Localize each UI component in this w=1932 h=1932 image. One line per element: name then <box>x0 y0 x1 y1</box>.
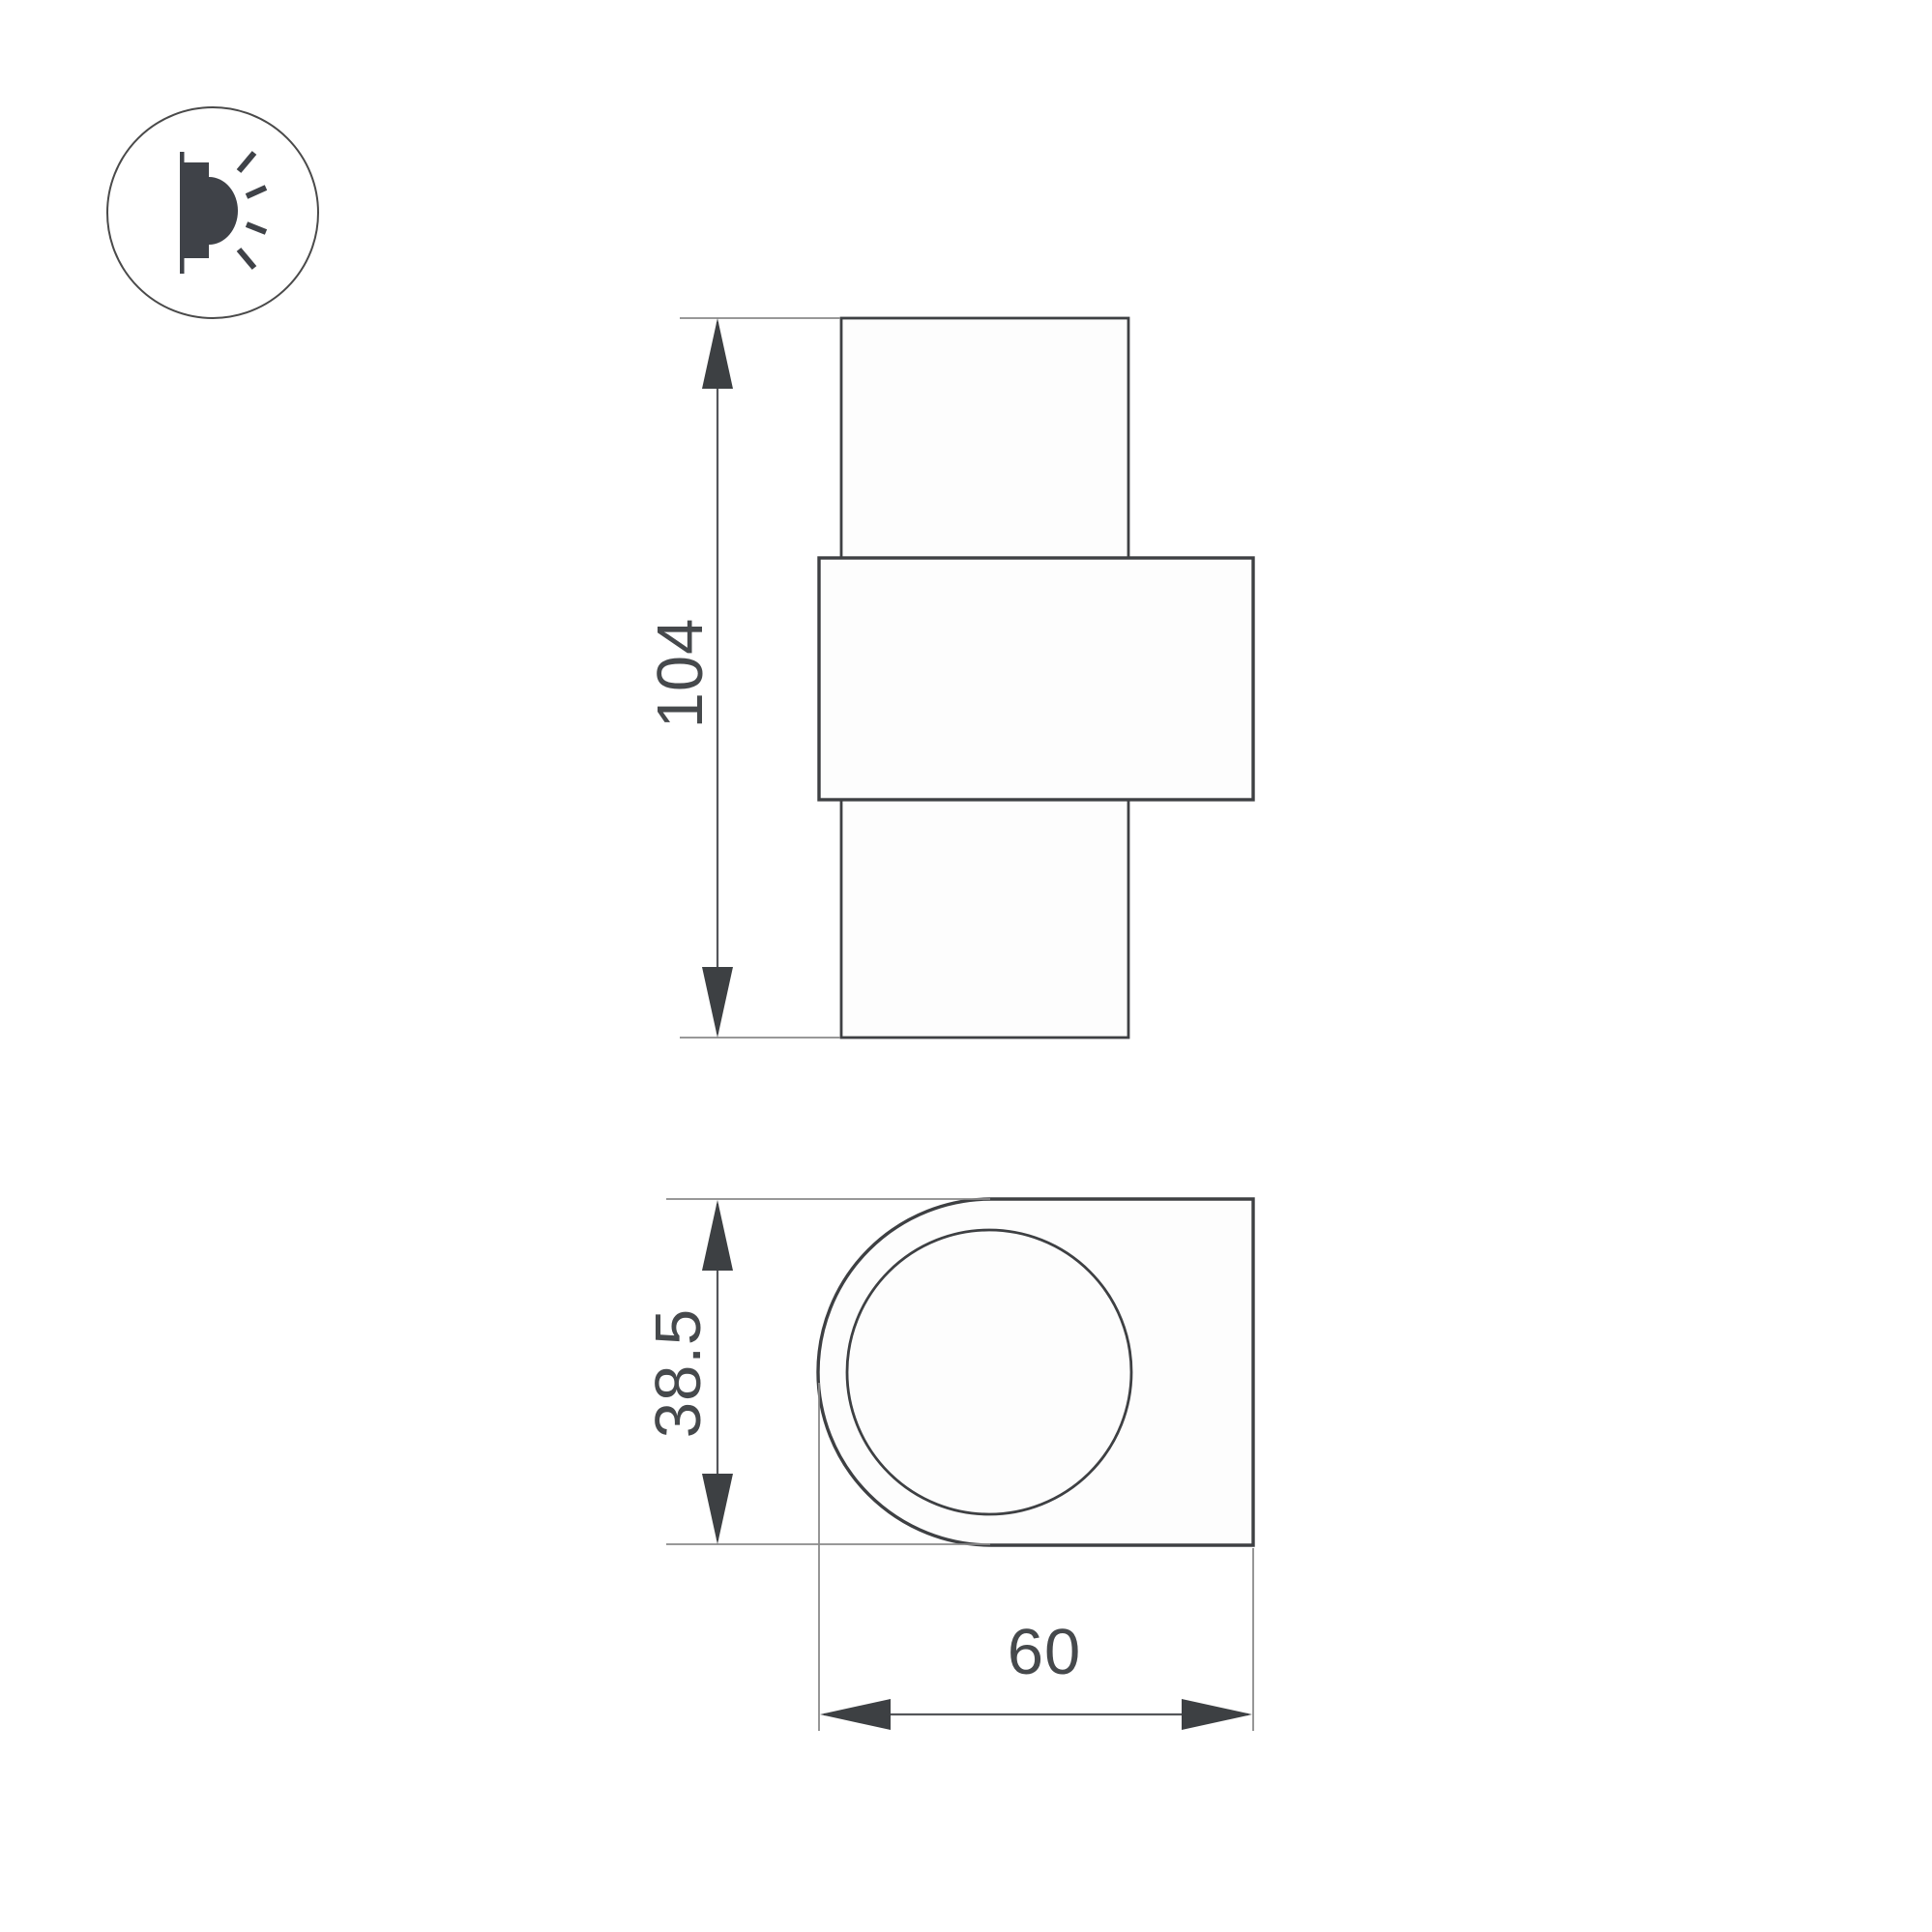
arrowhead-right <box>1182 1699 1252 1730</box>
arrowhead-up <box>702 1200 733 1271</box>
depth-dimension-label: 38.5 <box>642 1308 715 1438</box>
height-dimension: 104 <box>644 318 840 1038</box>
width-dimension-label: 60 <box>1008 1616 1082 1688</box>
light-rays-icon <box>239 153 266 268</box>
lamp-body-icon <box>185 162 210 258</box>
arrowhead-left <box>820 1699 891 1730</box>
drawing-svg: 104 38.5 60 <box>0 0 1932 1932</box>
arrowhead-down <box>702 1474 733 1544</box>
front-bottom-cylinder <box>841 800 1128 1038</box>
height-dimension-label: 104 <box>644 618 717 729</box>
side-view <box>818 1199 1253 1545</box>
arrowhead-down <box>702 967 733 1038</box>
wall-line-icon <box>180 152 185 274</box>
wall-lamp-icon <box>107 107 318 318</box>
arrowhead-up <box>702 318 733 389</box>
front-middle-block <box>819 558 1253 800</box>
lamp-glow-dome-icon <box>209 177 238 245</box>
technical-drawing-canvas: 104 38.5 60 <box>0 0 1932 1932</box>
side-lens-circle <box>847 1230 1131 1514</box>
front-view <box>819 318 1253 1038</box>
front-top-cylinder <box>841 318 1128 558</box>
